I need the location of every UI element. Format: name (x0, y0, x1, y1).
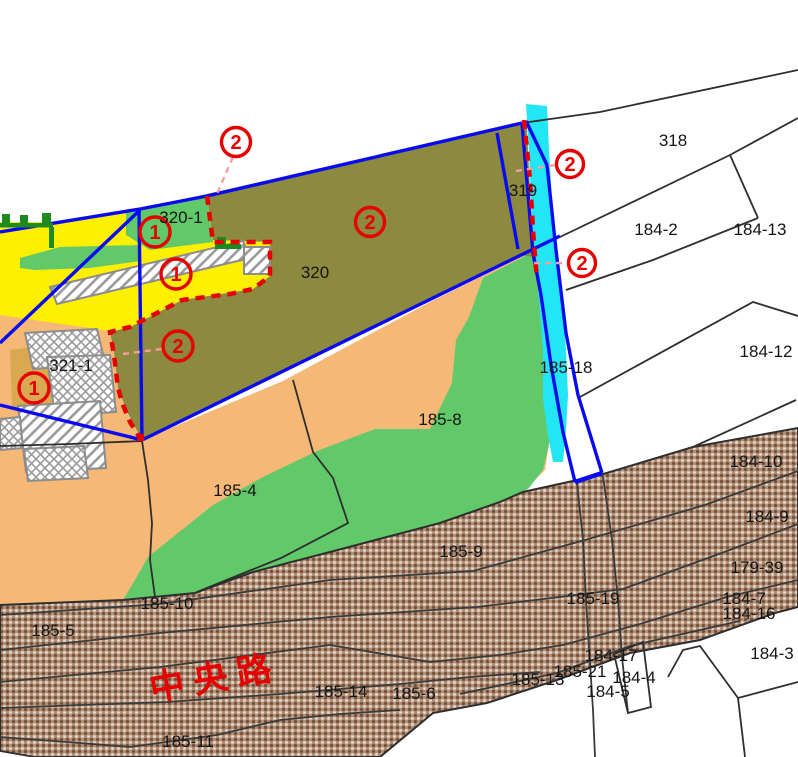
parcel-label-185-4: 185-4 (213, 481, 256, 500)
parcel-label-185-6: 185-6 (392, 684, 435, 703)
hatched-building-small (244, 247, 270, 274)
parcel-label-320-1: 320-1 (159, 208, 202, 227)
svg-text:1: 1 (28, 378, 39, 400)
parcel-label-179-39: 179-39 (731, 558, 784, 577)
svg-text:2: 2 (576, 253, 587, 275)
parcel-label-318: 318 (659, 131, 687, 150)
cadastral-map-viewport[interactable]: 2 1 1 2 1 2 2 2 318 319 320 320-1 321-1 … (0, 0, 798, 757)
svg-text:2: 2 (364, 212, 375, 234)
parcel-label-185-5: 185-5 (31, 621, 74, 640)
svg-text:2: 2 (564, 154, 575, 176)
parcel-label-185-13: 185-13 (512, 670, 565, 689)
parcel-label-184-16: 184-16 (723, 604, 776, 623)
parcel-label-184-3: 184-3 (750, 644, 793, 663)
parcel-label-184-13: 184-13 (734, 220, 787, 239)
parcel-label-185-14: 185-14 (315, 682, 368, 701)
parcel-label-321-1: 321-1 (49, 356, 92, 375)
parcel-label-184-12: 184-12 (740, 342, 793, 361)
parcel-label-185-10: 185-10 (141, 594, 194, 613)
parcel-label-184-9: 184-9 (745, 507, 788, 526)
parcel-label-184-10: 184-10 (730, 452, 783, 471)
svg-text:2: 2 (172, 336, 183, 358)
parcel-label-185-19: 185-19 (567, 589, 620, 608)
parcel-label-184-2: 184-2 (634, 220, 677, 239)
parcel-label-320: 320 (301, 263, 329, 282)
parcel-label-319: 319 (509, 181, 537, 200)
cadastral-map-canvas[interactable]: 2 1 1 2 1 2 2 2 318 319 320 320-1 321-1 … (0, 0, 798, 757)
parcel-label-185-9: 185-9 (439, 542, 482, 561)
svg-text:2: 2 (230, 132, 241, 154)
parcel-label-185-8: 185-8 (418, 410, 461, 429)
parcel-label-184-5: 184-5 (586, 682, 629, 701)
svg-text:1: 1 (170, 264, 181, 286)
parcel-label-185-11: 185-11 (162, 732, 214, 751)
red-node (137, 434, 144, 441)
parcel-label-185-18: 185-18 (540, 358, 593, 377)
